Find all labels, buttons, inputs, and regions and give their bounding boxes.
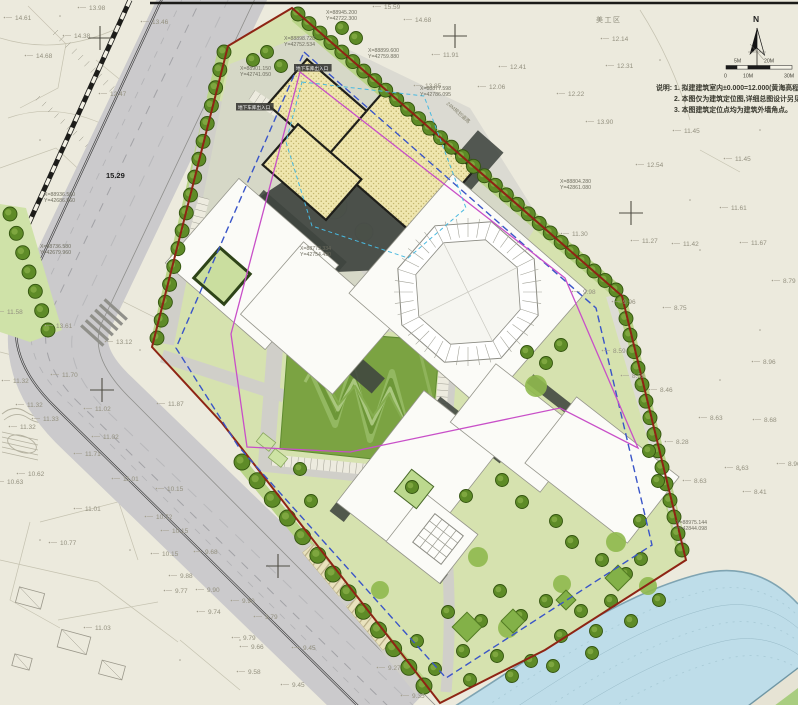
elevation-dot bbox=[74, 453, 76, 455]
elevation-dot bbox=[636, 164, 638, 166]
tree-highlight bbox=[635, 516, 641, 522]
spot-elevation-label: 8.63 bbox=[710, 415, 723, 422]
north-label: N bbox=[753, 14, 759, 24]
spot-elevation-label: 11.01 bbox=[85, 506, 101, 513]
spot-elevation-label: 11.32 bbox=[20, 424, 36, 431]
scale-label-20m: 20M bbox=[764, 59, 774, 65]
elevation-dot bbox=[78, 7, 80, 9]
spot-elevation-label: 14.61 bbox=[15, 15, 32, 22]
spot-elevation-label: 11.32 bbox=[13, 378, 29, 385]
survey-dot bbox=[759, 329, 761, 331]
elevation-dot bbox=[157, 403, 159, 405]
spot-elevation-label: 9.45 bbox=[303, 645, 316, 652]
elevation-dot bbox=[478, 86, 480, 88]
scale-label-0: 0 bbox=[724, 74, 727, 80]
elevation-dot bbox=[51, 374, 53, 376]
tree-highlight bbox=[215, 65, 221, 71]
survey-dot bbox=[39, 139, 41, 141]
spot-elevation-label: 10.15 bbox=[162, 551, 179, 558]
coordinate-label: Y=42759.880 bbox=[368, 54, 399, 60]
tree-highlight bbox=[248, 55, 254, 61]
survey-dot bbox=[39, 539, 41, 541]
tree-highlight bbox=[30, 286, 36, 292]
elevation-dot bbox=[772, 280, 774, 282]
spot-elevation-label: 12.31 bbox=[617, 63, 634, 70]
spot-elevation-label: 10.62 bbox=[28, 471, 45, 478]
spot-elevation-label: 8.63 bbox=[736, 465, 749, 472]
elevation-dot bbox=[401, 695, 403, 697]
elevation-dot bbox=[649, 389, 651, 391]
tree-highlight bbox=[517, 497, 523, 503]
elevation-dot bbox=[720, 207, 722, 209]
elevation-dot bbox=[92, 436, 94, 438]
elevation-dot bbox=[699, 417, 701, 419]
spot-elevation-label: 9.98 bbox=[583, 289, 596, 296]
scale-label-5m: 5M bbox=[734, 59, 741, 65]
elevation-dot bbox=[196, 589, 198, 591]
survey-dot bbox=[129, 549, 131, 551]
spot-elevation-label: 10.15 bbox=[167, 486, 184, 493]
tree-highlight bbox=[576, 606, 582, 612]
elevation-dot bbox=[601, 38, 603, 40]
tree-highlight bbox=[343, 587, 350, 594]
tree-highlight bbox=[507, 671, 513, 677]
elevation-dot bbox=[74, 508, 76, 510]
elevation-dot bbox=[373, 6, 375, 8]
canopy-blob bbox=[606, 532, 626, 552]
scale-seg bbox=[748, 66, 770, 70]
elevation-dot bbox=[25, 55, 27, 57]
elevation-dot bbox=[161, 530, 163, 532]
spot-elevation-label: 12.54 bbox=[647, 162, 664, 169]
tree-highlight bbox=[24, 267, 30, 273]
spot-elevation-label: 11.03 bbox=[95, 625, 111, 632]
scale-seg bbox=[726, 66, 737, 70]
elevation-dot bbox=[164, 590, 166, 592]
spot-elevation-label: 9.90 bbox=[207, 587, 220, 594]
elevation-dot bbox=[112, 478, 114, 480]
scale-label-30m: 30M bbox=[784, 74, 794, 80]
spot-elevation-label: 10.63 bbox=[7, 479, 24, 486]
spot-elevation-label: 8.63 bbox=[694, 478, 707, 485]
tree-highlight bbox=[587, 648, 593, 654]
spot-elevation-label: 12.14 bbox=[612, 36, 629, 43]
elevation-dot bbox=[2, 380, 4, 382]
elevation-dot bbox=[16, 404, 18, 406]
spot-elevation-label: 8.59 bbox=[613, 348, 626, 355]
tree-highlight bbox=[11, 228, 17, 234]
spot-elevation-label: 11.70 bbox=[62, 372, 78, 379]
elevation-dot bbox=[99, 93, 101, 95]
elevation-dot bbox=[432, 54, 434, 56]
spot-elevation-label: 9.35 bbox=[412, 693, 425, 700]
elevation-dot bbox=[572, 291, 574, 293]
site-plan-drawing: 14.6113.9813.4614.6814.3812.4715.5914.68… bbox=[0, 0, 798, 705]
spot-elevation-label: 9.96 bbox=[623, 299, 636, 306]
tree-highlight bbox=[492, 651, 498, 657]
tree-highlight bbox=[556, 631, 562, 637]
spot-elevation-label: 8.46 bbox=[660, 387, 673, 394]
survey-dot bbox=[139, 349, 141, 351]
scale-seg bbox=[737, 66, 748, 70]
tree-highlight bbox=[267, 494, 274, 501]
tree-highlight bbox=[567, 537, 573, 543]
elevation-dot bbox=[9, 426, 11, 428]
tree-highlight bbox=[541, 596, 547, 602]
spot-elevation-label: 11.02 bbox=[95, 406, 111, 413]
spot-elevation-label: 11.91 bbox=[443, 52, 459, 59]
spot-elevation-label: 9.27 bbox=[388, 665, 401, 672]
coordinate-label: Y=42861.080 bbox=[560, 185, 591, 191]
spot-elevation-label: 11.30 bbox=[572, 231, 588, 238]
spot-elevation-label: 13.61 bbox=[56, 323, 73, 330]
survey-dot bbox=[179, 659, 181, 661]
tree-highlight bbox=[43, 325, 49, 331]
spot-elevation-label: 13.46 bbox=[152, 19, 169, 26]
spot-elevation-label: 11.01 bbox=[123, 476, 139, 483]
tree-highlight bbox=[312, 550, 319, 557]
tree-highlight bbox=[461, 491, 467, 497]
spot-elevation-label: 12.22 bbox=[568, 91, 585, 98]
spot-elevation-label: 8.75 bbox=[674, 305, 687, 312]
spot-elevation-label: 12.41 bbox=[510, 64, 527, 71]
elevation-dot bbox=[602, 350, 604, 352]
elevation-dot bbox=[724, 158, 726, 160]
spot-elevation-label: 9.68 bbox=[205, 549, 218, 556]
spot-elevation-label: 9.66 bbox=[251, 644, 264, 651]
notes-prefix: 说明: bbox=[656, 83, 672, 92]
elevation-dot bbox=[281, 684, 283, 686]
notes-line-3: 3. 本图建筑定位点均为建筑外墙角点。 bbox=[674, 105, 792, 114]
survey-dot bbox=[659, 59, 661, 61]
spot-elevation-label: 11.87 bbox=[168, 401, 184, 408]
tree-highlight bbox=[495, 586, 501, 592]
elevation-dot bbox=[63, 35, 65, 37]
tree-highlight bbox=[211, 83, 217, 89]
elevation-dot bbox=[194, 551, 196, 553]
spot-elevation-label: 11.61 bbox=[731, 205, 747, 212]
spot-elevation-label: 9.79 bbox=[265, 614, 278, 621]
elevation-dot bbox=[197, 611, 199, 613]
elevation-dot bbox=[663, 307, 665, 309]
spot-elevation-label: 9.88 bbox=[180, 573, 193, 580]
spot-elevation-label: 13.98 bbox=[89, 5, 106, 12]
spot-elevation-label: 8.41 bbox=[754, 489, 767, 496]
elevation-dot bbox=[673, 130, 675, 132]
spot-elevation-label: 9.77 bbox=[175, 588, 188, 595]
spot-elevation-label: 12.47 bbox=[110, 91, 127, 98]
tree-highlight bbox=[18, 248, 24, 254]
elevation-dot bbox=[725, 467, 727, 469]
elevation-dot bbox=[404, 19, 406, 21]
elevation-dot bbox=[631, 240, 633, 242]
tree-highlight bbox=[236, 456, 243, 463]
coordinate-label: Y=42686.560 bbox=[44, 198, 75, 204]
elevation-dot bbox=[156, 488, 158, 490]
tree-highlight bbox=[497, 475, 503, 481]
tree-highlight bbox=[653, 476, 659, 482]
spot-elevation-label: 11.33 bbox=[43, 416, 59, 423]
site-plan-page: 14.6113.9813.4614.6814.3812.4715.5914.68… bbox=[0, 0, 798, 705]
canopy-blob bbox=[553, 575, 571, 593]
tree-highlight bbox=[644, 446, 650, 452]
elevation-dot bbox=[105, 341, 107, 343]
spot-elevation-label: 11.67 bbox=[751, 240, 767, 247]
tree-highlight bbox=[262, 47, 268, 53]
tree-highlight bbox=[282, 512, 289, 519]
elevation-dot bbox=[606, 65, 608, 67]
notes-text: 说明: 1. 拟建建筑室内±0.000=12.000(黄海高程) 2. 本图仅为… bbox=[656, 83, 798, 114]
elevation-dot bbox=[414, 85, 416, 87]
tree-highlight bbox=[337, 23, 343, 29]
elevation-dot bbox=[17, 473, 19, 475]
elevation-dot bbox=[377, 667, 379, 669]
elevation-dot bbox=[254, 616, 256, 618]
tree-highlight bbox=[606, 596, 612, 602]
tree-highlight bbox=[306, 496, 312, 502]
elevation-dot bbox=[740, 242, 742, 244]
spot-elevation-label: 12.06 bbox=[489, 84, 506, 91]
coordinate-label: Y=42754.490 bbox=[300, 252, 331, 258]
tree-highlight bbox=[654, 595, 660, 601]
site-label: 地下车库出入口 bbox=[238, 104, 271, 111]
spot-elevation-label: 9.45 bbox=[292, 682, 305, 689]
spot-elevation-label: 8.96 bbox=[763, 359, 776, 366]
notes-line-1: 1. 拟建建筑室内±0.000=12.000(黄海高程) bbox=[674, 83, 798, 92]
spot-elevation-label: 11.58 bbox=[7, 309, 23, 316]
canopy-blob bbox=[371, 581, 389, 599]
notes-line-2: 2. 本图仅为建筑定位图,详细总图设计另见景观设计 bbox=[674, 94, 798, 103]
survey-dot bbox=[699, 249, 701, 251]
tree-highlight bbox=[37, 306, 43, 312]
survey-dot bbox=[59, 15, 61, 17]
tree-highlight bbox=[351, 33, 357, 39]
canopy-blob bbox=[468, 547, 488, 567]
tree-highlight bbox=[458, 646, 464, 652]
zone-label: 美工区 bbox=[596, 15, 622, 24]
spot-elevation-label: 13.12 bbox=[116, 339, 133, 346]
elevation-dot bbox=[672, 243, 674, 245]
tree-highlight bbox=[295, 464, 301, 470]
elevation-dot bbox=[240, 646, 242, 648]
spot-elevation-label: 8.68 bbox=[764, 417, 777, 424]
elevation-dot bbox=[561, 233, 563, 235]
spot-elevation-label: 11.02 bbox=[103, 434, 119, 441]
elevation-dot bbox=[49, 542, 51, 544]
spot-elevation-label: 8.28 bbox=[676, 439, 689, 446]
scale-label-10m: 10M bbox=[743, 74, 753, 80]
spot-elevation-label: 8.59 bbox=[632, 373, 645, 380]
tree-highlight bbox=[591, 626, 597, 632]
spot-elevation-label: 9.58 bbox=[248, 669, 261, 676]
coordinate-label: Y=42679.960 bbox=[40, 250, 71, 256]
elevation-dot bbox=[292, 647, 294, 649]
benchmark-elevation: 15.29 bbox=[106, 171, 125, 180]
coordinate-label: Y=42752.534 bbox=[284, 42, 315, 48]
spot-elevation-label: 10.15 bbox=[172, 528, 189, 535]
elevation-dot bbox=[753, 419, 755, 421]
elevation-dot bbox=[32, 418, 34, 420]
tree-highlight bbox=[327, 568, 334, 575]
elevation-dot bbox=[557, 93, 559, 95]
tree-highlight bbox=[407, 482, 413, 488]
spot-elevation-label: 10.72 bbox=[156, 514, 173, 521]
elevation-dot bbox=[232, 637, 234, 639]
elevation-dot bbox=[743, 491, 745, 493]
coordinate-label: Y=42722.300 bbox=[326, 16, 357, 22]
elevation-dot bbox=[169, 575, 171, 577]
spot-elevation-label: 9.74 bbox=[208, 609, 221, 616]
elevation-dot bbox=[84, 627, 86, 629]
spot-elevation-label: 14.68 bbox=[36, 53, 53, 60]
elevation-dot bbox=[84, 408, 86, 410]
tree-highlight bbox=[636, 554, 642, 560]
tree-highlight bbox=[548, 661, 554, 667]
site-label: 地下车库出入口 bbox=[296, 65, 329, 72]
spot-elevation-label: 8.79 bbox=[783, 278, 796, 285]
tree-highlight bbox=[541, 358, 547, 364]
tree-highlight bbox=[522, 347, 528, 353]
tree-highlight bbox=[551, 516, 557, 522]
elevation-dot bbox=[151, 553, 153, 555]
coordinate-label: Y=42844.098 bbox=[676, 526, 707, 532]
canopy-blob bbox=[525, 375, 547, 397]
elevation-dot bbox=[499, 66, 501, 68]
tree-highlight bbox=[476, 616, 482, 622]
tree-highlight bbox=[465, 675, 471, 681]
elevation-dot bbox=[665, 441, 667, 443]
tree-highlight bbox=[443, 607, 449, 613]
elevation-dot bbox=[145, 516, 147, 518]
spot-elevation-label: 14.68 bbox=[415, 17, 432, 24]
elevation-dot bbox=[621, 375, 623, 377]
tree-highlight bbox=[276, 61, 282, 67]
spot-elevation-label: 11.32 bbox=[27, 402, 43, 409]
spot-elevation-label: 8.96 bbox=[788, 461, 798, 468]
elevation-dot bbox=[141, 21, 143, 23]
spot-elevation-label: 11.45 bbox=[684, 128, 700, 135]
spot-elevation-label: 11.45 bbox=[735, 156, 751, 163]
scale-seg bbox=[770, 66, 792, 70]
tree-highlight bbox=[219, 47, 225, 53]
elevation-dot bbox=[777, 463, 779, 465]
spot-elevation-label: 10.77 bbox=[60, 540, 77, 547]
spot-elevation-label: 11.27 bbox=[642, 238, 658, 245]
spot-elevation-label: 13.90 bbox=[597, 119, 614, 126]
tree-highlight bbox=[297, 531, 304, 538]
tree-highlight bbox=[5, 209, 11, 215]
spot-elevation-label: 11.71 bbox=[85, 451, 101, 458]
elevation-dot bbox=[586, 121, 588, 123]
survey-dot bbox=[759, 129, 761, 131]
elevation-dot bbox=[45, 325, 47, 327]
tree-highlight bbox=[556, 340, 562, 346]
tree-highlight bbox=[252, 475, 259, 482]
tree-highlight bbox=[626, 616, 632, 622]
spot-elevation-label: 14.38 bbox=[74, 33, 91, 40]
tree-highlight bbox=[597, 555, 603, 561]
elevation-dot bbox=[4, 17, 6, 19]
survey-dot bbox=[239, 639, 241, 641]
spot-elevation-label: 9.90 bbox=[242, 598, 255, 605]
survey-dot bbox=[689, 199, 691, 201]
elevation-dot bbox=[612, 301, 614, 303]
spot-elevation-label: 15.59 bbox=[384, 4, 401, 11]
elevation-dot bbox=[752, 361, 754, 363]
elevation-dot bbox=[237, 671, 239, 673]
survey-dot bbox=[719, 379, 721, 381]
elevation-dot bbox=[231, 600, 233, 602]
spot-elevation-label: 11.42 bbox=[683, 241, 699, 248]
coordinate-label: Y=42786.095 bbox=[420, 92, 451, 98]
spot-elevation-label: 9.79 bbox=[243, 635, 256, 642]
coordinate-label: Y=42741.050 bbox=[240, 72, 271, 78]
elevation-dot bbox=[683, 480, 685, 482]
